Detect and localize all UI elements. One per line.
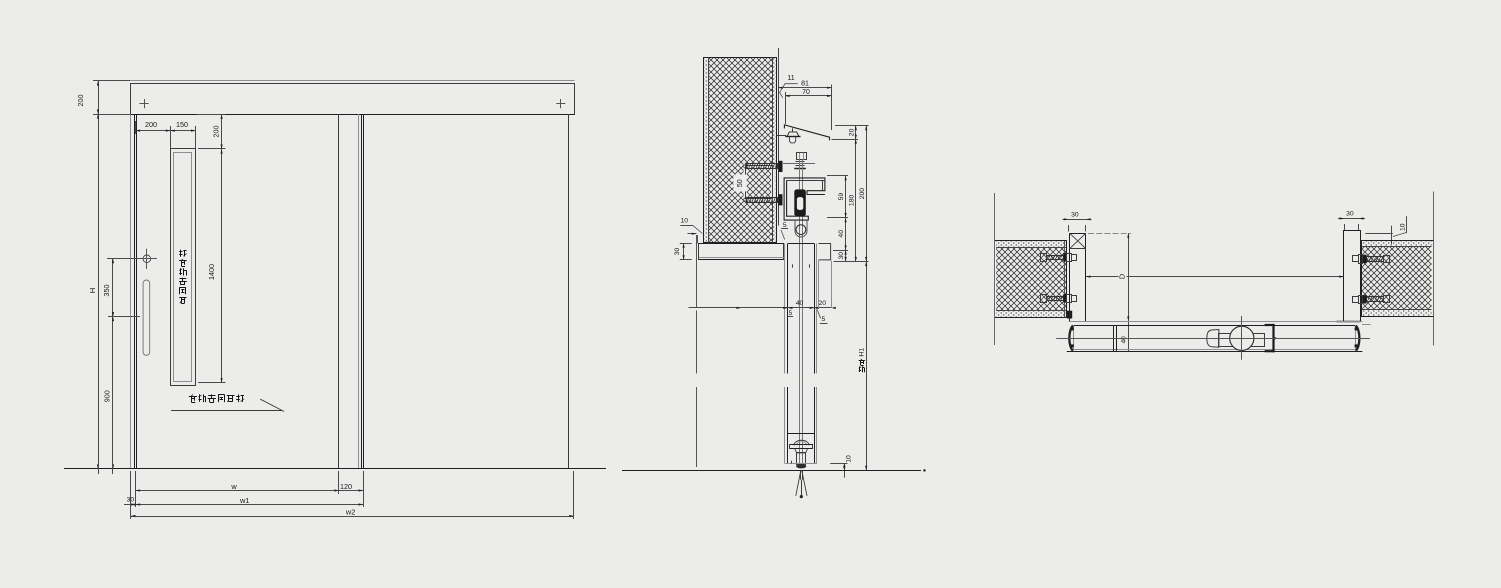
svg-text:30: 30 xyxy=(674,248,681,256)
svg-text:200: 200 xyxy=(145,120,157,129)
svg-text:10: 10 xyxy=(845,455,852,463)
svg-text:20: 20 xyxy=(819,300,827,307)
svg-text:11: 11 xyxy=(787,75,794,82)
svg-text:50: 50 xyxy=(737,179,744,187)
svg-text:10: 10 xyxy=(681,218,689,225)
svg-text:900: 900 xyxy=(103,390,112,402)
svg-text:D: D xyxy=(1118,274,1127,279)
svg-text:20: 20 xyxy=(849,128,856,136)
svg-text:150: 150 xyxy=(176,120,188,129)
svg-text:180: 180 xyxy=(848,195,855,207)
svg-text:w: w xyxy=(230,482,237,491)
svg-text:40: 40 xyxy=(838,230,845,238)
svg-text:81: 81 xyxy=(801,80,809,87)
svg-text:200: 200 xyxy=(212,126,221,138)
svg-text:200: 200 xyxy=(76,95,85,107)
svg-text:w1: w1 xyxy=(239,496,249,505)
svg-text:30: 30 xyxy=(838,252,845,260)
svg-text:40: 40 xyxy=(796,300,804,307)
svg-text:H: H xyxy=(88,288,97,293)
svg-text:H1: H1 xyxy=(859,348,866,357)
svg-text:1400: 1400 xyxy=(207,264,216,280)
svg-text:30: 30 xyxy=(1346,211,1354,218)
svg-text:200: 200 xyxy=(859,188,866,200)
svg-text:w2: w2 xyxy=(345,507,355,516)
svg-text:350: 350 xyxy=(102,285,111,297)
svg-text:30: 30 xyxy=(1071,211,1079,218)
svg-text:120: 120 xyxy=(340,482,352,491)
svg-text:10: 10 xyxy=(1399,223,1406,231)
svg-text:59: 59 xyxy=(838,193,845,201)
svg-text:5: 5 xyxy=(822,316,826,323)
svg-text:70: 70 xyxy=(802,89,810,96)
svg-text:40: 40 xyxy=(1121,336,1128,344)
svg-text:30: 30 xyxy=(127,497,135,504)
svg-text:5: 5 xyxy=(783,222,787,229)
